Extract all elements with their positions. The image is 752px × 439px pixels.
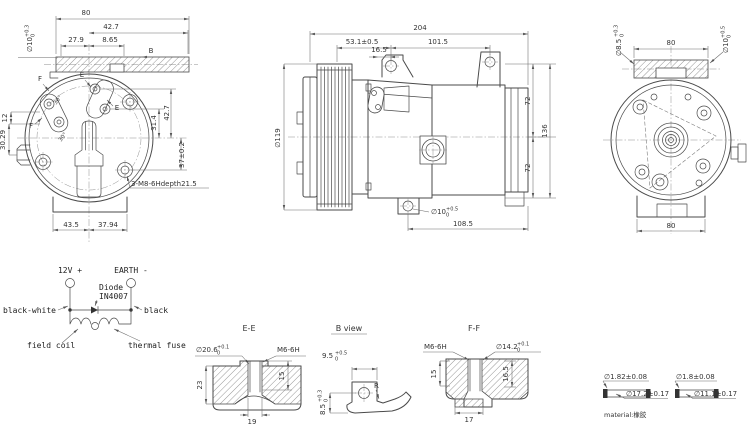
terminal-earth-label: EARTH -: [114, 266, 148, 275]
material-note: material:橡胶: [604, 410, 647, 419]
dim-204: 204: [413, 24, 427, 32]
section-f-f: F-F M6-6H ∅14.2 +0.1 0 15 16.5 17: [423, 324, 541, 424]
dim-12: 12: [1, 114, 9, 123]
diode-symbol: [91, 307, 98, 314]
dia8-5-minus: 0: [620, 34, 626, 37]
dim-17-ff: 17: [465, 416, 474, 424]
dim-15-ff: 15: [430, 370, 438, 379]
dim-43-5: 43.5: [63, 221, 79, 229]
field-coil-label: field coil: [27, 341, 75, 350]
drawing-canvas: 80 42.7 27.9 8.65 ∅10 +0.3 0 B 31.4 42.7…: [0, 0, 752, 439]
note-3-m8: 3-M8-6Hdepth21.5: [131, 180, 197, 188]
dim-42-7-right: 42.7: [163, 105, 171, 121]
dim-15-ee: 15: [278, 372, 286, 381]
dia10-minus: 0: [446, 213, 449, 219]
dim-80-top: 80: [82, 9, 91, 17]
dim-8-5-minus: 0: [324, 399, 330, 402]
section-marker-e2: E: [115, 104, 119, 112]
dim-19-ee: 19: [248, 418, 257, 426]
dim-101-5: 101.5: [428, 38, 448, 46]
dia10-base: ∅10: [26, 37, 34, 52]
section-marker-f2: F: [29, 122, 33, 130]
section-ee-title: E-E: [243, 324, 256, 333]
dim-16-5: 16.5: [371, 46, 387, 54]
section-marker-f1: F: [38, 75, 42, 83]
dim-dia10-front: ∅10 +0.3 0: [25, 25, 37, 52]
dim-16-5-ff: 16.5: [502, 366, 510, 382]
dim-80-bottom-rear: 80: [667, 222, 676, 230]
terminal-12v-label: 12V +: [58, 266, 82, 275]
dim-31-4: 31.4: [150, 115, 158, 131]
dim-dia10-rear: ∅10 +0.5 0: [721, 26, 733, 53]
dim-8-65: 8.65: [102, 36, 118, 44]
dia14-2-minus: 0: [517, 348, 520, 354]
section-ff-title: F-F: [468, 324, 480, 333]
section-e-e: E-E ∅20.6 +0.1 0 M6-6H 23 15 19: [195, 324, 306, 426]
dim-27-9: 27.9: [68, 36, 84, 44]
dim-dia14-2: ∅14.2 +0.1 0: [483, 342, 541, 361]
dia20-6-base: ∅20.6: [196, 346, 218, 354]
rear-view: 80 ∅8.5 +0.3 0 ∅10 +0.5 0 80: [603, 25, 746, 234]
dim-dia10-side: ∅10 +0.5 0: [431, 207, 458, 219]
dim-37-94: 37.94: [98, 221, 119, 229]
dim-9-5-base: 9.5: [322, 352, 333, 360]
oring-right-dia: ∅11.1±0.17: [694, 390, 737, 398]
dia14-2-base: ∅14.2: [496, 343, 518, 351]
view-b: B view 9.5 +0.5 0 R 8.5 +0.3 0: [318, 324, 412, 415]
oring-left-cs: ∅1.82±0.08: [604, 373, 647, 381]
angle-30-b: 30°: [58, 131, 69, 143]
dim-37: 37±0.2: [178, 142, 186, 168]
thread-m6-ff: M6-6H: [424, 343, 447, 351]
dim-9-5-minus: 0: [335, 357, 338, 363]
dia10-minus: 0: [727, 35, 733, 38]
oring-specs: ∅1.82±0.08 ∅17.2±0.17 ∅1.8±0.08 ∅11.1±0.…: [603, 373, 737, 419]
dim-53-1: 53.1±0.5: [346, 38, 379, 46]
dia10-base: ∅10: [722, 38, 730, 53]
view-arrow-b-label: B: [149, 47, 154, 55]
dim-8-5: 8.5 +0.3 0: [318, 390, 330, 415]
dim-9-5: 9.5 +0.5 0: [322, 351, 347, 363]
dim-dia119: ∅119: [274, 128, 282, 147]
dia20-6-minus: 0: [217, 351, 220, 357]
dim-8-5-base: 8.5: [319, 404, 327, 415]
wire-black-label: black: [144, 306, 168, 315]
dim-30-29: 30.29: [0, 130, 7, 150]
side-view: 204 53.1±0.5 101.5 16.5 ∅119 72 72 136 ∅…: [274, 24, 556, 231]
dim-108-5: 108.5: [453, 220, 473, 228]
wire-black-white-label: black-white: [3, 306, 56, 315]
oring-right: ∅1.8±0.08 ∅11.1±0.17: [675, 373, 737, 399]
dia10-base: ∅10: [431, 208, 446, 216]
compressor-engineering-drawing: 80 42.7 27.9 8.65 ∅10 +0.3 0 B 31.4 42.7…: [0, 0, 752, 439]
dim-72-lower: 72: [524, 164, 532, 173]
thermal-fuse-label: thermal fuse: [128, 341, 186, 350]
dim-136: 136: [541, 124, 549, 138]
oring-right-cs: ∅1.8±0.08: [676, 373, 715, 381]
dim-23-ee: 23: [196, 381, 204, 390]
front-view: 80 42.7 27.9 8.65 ∅10 +0.3 0 B 31.4 42.7…: [0, 9, 209, 242]
dim-72-upper: 72: [524, 97, 532, 106]
view-b-title: B view: [336, 324, 363, 333]
dim-42-7-top: 42.7: [103, 23, 119, 31]
radius-r-label: R: [374, 382, 379, 390]
oring-left: ∅1.82±0.08 ∅17.2±0.17: [603, 373, 669, 399]
oring-left-dia: ∅17.2±0.17: [626, 390, 669, 398]
thread-m6-ee: M6-6H: [277, 346, 300, 354]
dim-dia8-5-rear: ∅8.5 +0.3 0: [614, 25, 626, 56]
dia10-minus: 0: [31, 34, 37, 37]
diode-label-2: IN4007: [99, 292, 128, 301]
dim-80-top-rear: 80: [667, 39, 676, 47]
wiring-diagram: 12V + EARTH - Diode IN4007 black-white b…: [3, 266, 186, 350]
diode-label-1: Diode: [99, 283, 123, 292]
section-marker-e1: E: [80, 71, 84, 79]
m8-holes: [33, 92, 140, 180]
